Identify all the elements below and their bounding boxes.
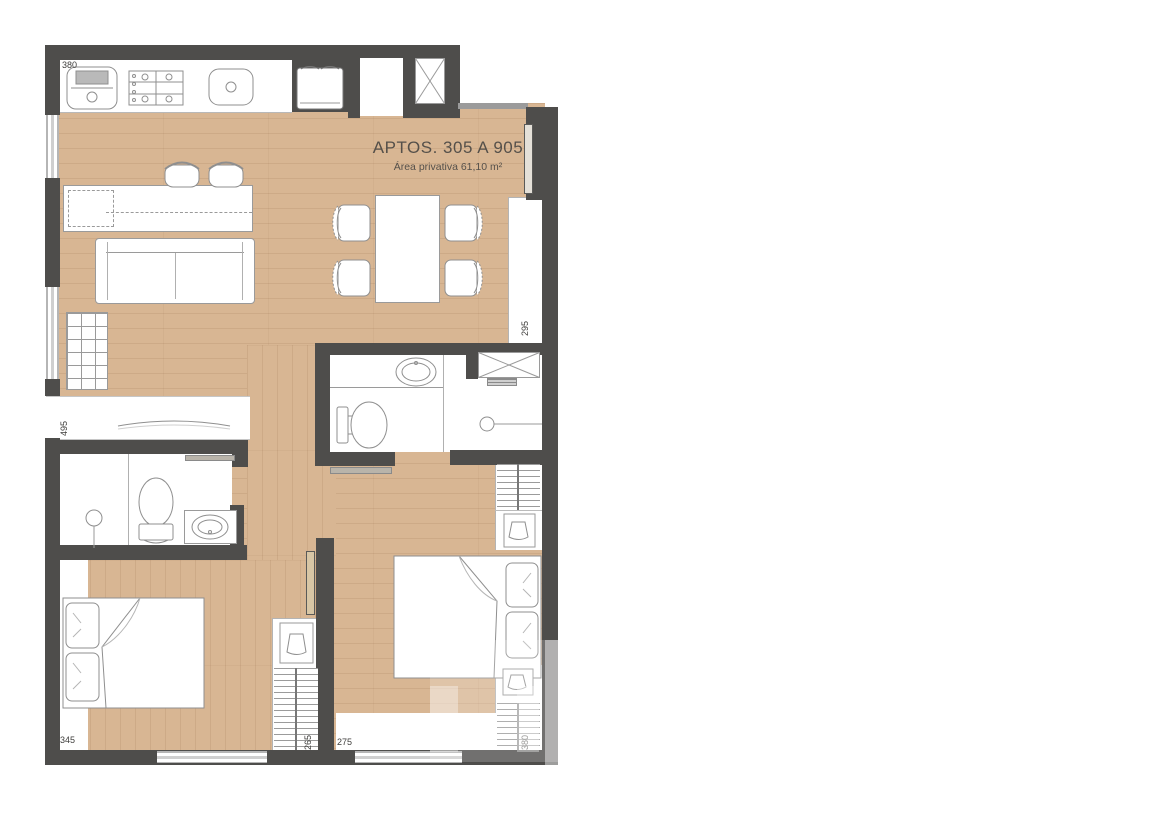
dimension-label: 295: [520, 300, 530, 336]
floor-plan-canvas: 380 295 495 345 265 275 380 APTOS. 305 A…: [0, 0, 1150, 813]
dimension-label: 265: [303, 720, 313, 750]
stove-icon: [296, 63, 344, 110]
duct-shaft-icon: [478, 352, 540, 378]
nightstand-icon: [279, 622, 314, 664]
stool-icon: [162, 158, 202, 188]
wall-bathroom2-top: [60, 440, 248, 454]
wall-bathroom1-bottom-right: [450, 450, 542, 465]
plan-title-block: APTOS. 305 A 905 Área privativa 61,10 m²: [348, 138, 548, 173]
dimension-label: 275: [337, 737, 352, 747]
kitchen-sink-icon: [208, 68, 254, 106]
wall-elevator-bottom: [403, 103, 460, 118]
bedroom1-door-leaf: [306, 551, 315, 615]
wall-elevator-left: [348, 45, 360, 118]
bathroom2-door-track: [185, 455, 235, 461]
outside-area-top-right: [455, 28, 565, 103]
dimension-label: 380: [62, 60, 77, 70]
shower-head-icon: [84, 508, 104, 550]
nightstand-icon: [503, 513, 536, 548]
sofa: [95, 238, 255, 304]
elevator-shaft-icon: [415, 58, 445, 104]
bathroom1-door-track: [330, 467, 392, 474]
window-left-1: [46, 115, 59, 178]
toilet-icon: [336, 399, 388, 451]
bath2-shower-glass: [128, 454, 129, 545]
wall-bathroom1-bottom-left: [315, 452, 395, 466]
dimension-label: 345: [60, 735, 75, 745]
bath2-sink-icon: [184, 510, 237, 544]
bath1-sink-icon: [394, 356, 438, 388]
console-curve: [46, 396, 250, 438]
plan-subtitle: Área privativa 61,10 m²: [348, 161, 548, 173]
wall-duct-left: [466, 343, 478, 379]
entry-lintel: [458, 103, 528, 109]
closet-hangers: [497, 464, 540, 510]
dining-chair-icon: [443, 202, 487, 244]
toilet-icon: [136, 476, 176, 544]
wall-left-c: [45, 379, 60, 396]
bed-double-icon: [62, 597, 205, 709]
dining-chair-icon: [443, 257, 487, 299]
wall-left-b: [45, 178, 60, 287]
wall-top: [45, 45, 348, 60]
stool-icon: [206, 158, 246, 188]
wall-left-d: [45, 438, 60, 765]
watermark: [517, 686, 539, 752]
kitchen-island: [63, 185, 253, 232]
bath1-shower-glass: [443, 355, 444, 452]
wall-bedroom1-top: [45, 545, 247, 560]
wall-left-a: [45, 45, 60, 115]
dining-chair-icon: [328, 257, 372, 299]
shelf-grid: [66, 312, 108, 390]
dimension-label: 495: [59, 402, 69, 436]
shower-head-icon: [476, 413, 546, 435]
window-bedroom1: [157, 751, 267, 763]
island-dashed-line: [106, 212, 252, 213]
dishwasher-dashed: [68, 190, 114, 227]
plan-title: APTOS. 305 A 905: [348, 138, 548, 158]
watermark: [545, 640, 558, 765]
dining-table: [375, 195, 440, 303]
washing-machine-icon: [66, 66, 122, 110]
wall-bedroom-divider: [316, 538, 334, 762]
dish-rack-icon: [128, 70, 184, 106]
elevator-lobby: [360, 58, 403, 116]
window-left-2: [46, 287, 59, 379]
wall-bathroom2-pillar: [232, 440, 248, 467]
wall-bathroom1-left: [315, 343, 330, 465]
dining-chair-icon: [328, 202, 372, 244]
watermark: [430, 686, 458, 752]
duct-vent: [487, 378, 517, 386]
